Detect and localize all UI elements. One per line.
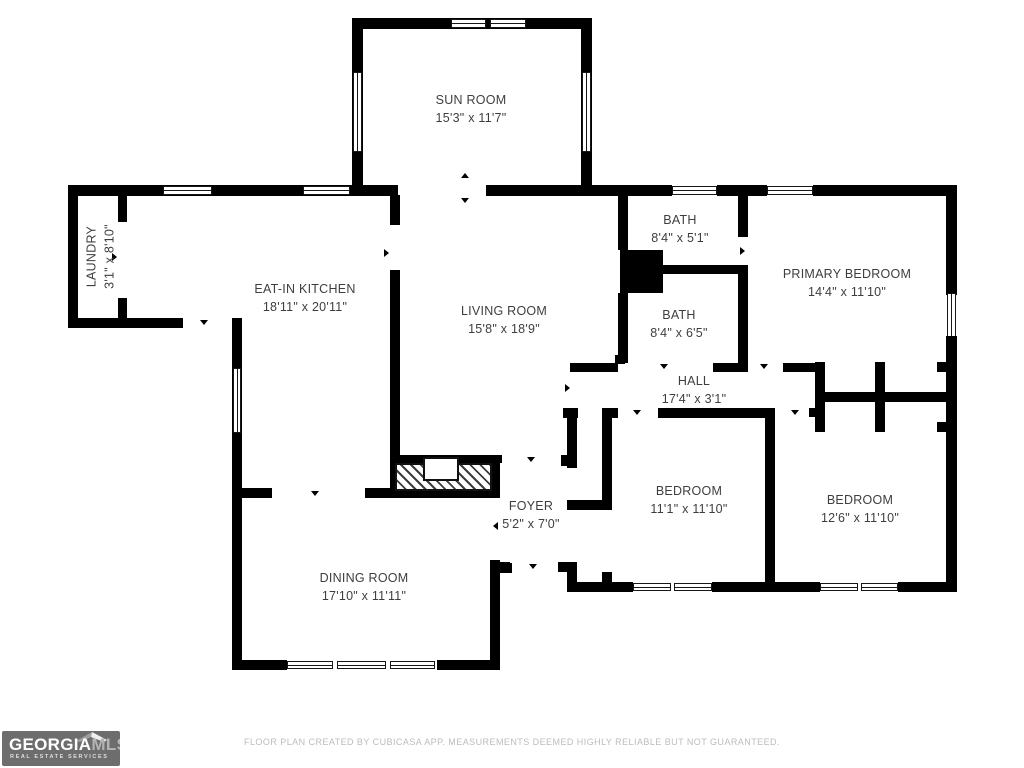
- wall-segment: [232, 660, 287, 670]
- wall-segment: [602, 408, 618, 418]
- wall-segment: [875, 362, 885, 432]
- door-marker: [740, 247, 745, 255]
- door-marker: [660, 364, 668, 369]
- wall-segment: [592, 185, 672, 196]
- window: [390, 661, 435, 669]
- window: [233, 368, 241, 433]
- room-name: SUN ROOM: [436, 92, 507, 110]
- door-marker: [200, 320, 208, 325]
- disclaimer-text: FLOOR PLAN CREATED BY CUBICASA APP. MEAS…: [0, 737, 1024, 747]
- room-label-bath-lower: BATH 8'4" x 6'5": [650, 307, 707, 342]
- door-marker: [760, 364, 768, 369]
- wall-segment: [809, 408, 815, 417]
- stair-landing: [423, 457, 459, 481]
- wall-segment: [783, 363, 817, 372]
- wall-segment: [937, 362, 957, 372]
- room-dims: 8'4" x 5'1": [651, 230, 708, 248]
- wall-segment: [486, 185, 592, 196]
- window: [337, 661, 386, 669]
- wall-segment: [390, 195, 400, 225]
- room-label-dining-room: DINING ROOM 17'10" x 11'11": [320, 570, 409, 605]
- logo-brand-primary: GEORGIA: [9, 735, 91, 754]
- door-marker: [791, 410, 799, 415]
- wall-segment: [559, 562, 567, 571]
- window: [287, 661, 333, 669]
- room-label-hall: HALL 17'4" x 3'1": [662, 373, 727, 408]
- room-name: BATH: [651, 212, 708, 230]
- room-dims: 15'8" x 18'9": [461, 321, 547, 339]
- wall-segment: [898, 582, 957, 592]
- georgia-mls-logo: GEORGIAMLS REAL ESTATE SERVICES: [2, 731, 120, 766]
- wall-segment: [815, 362, 825, 432]
- door-marker: [384, 249, 389, 257]
- wall-segment: [602, 572, 612, 582]
- logo-tagline: REAL ESTATE SERVICES: [10, 754, 109, 760]
- window: [303, 186, 350, 195]
- room-name: LIVING ROOM: [461, 303, 547, 321]
- window: [451, 19, 486, 28]
- wall-segment: [738, 196, 748, 237]
- wall-segment: [567, 562, 577, 592]
- logo-wordmark: GEORGIAMLS: [9, 735, 120, 755]
- door-marker: [633, 410, 641, 415]
- room-name: PRIMARY BEDROOM: [783, 266, 911, 284]
- room-name: EAT-IN KITCHEN: [254, 281, 355, 299]
- door-marker: [527, 457, 535, 462]
- room-dims: 11'1" x 11'10": [650, 501, 727, 519]
- wall-segment: [618, 196, 628, 250]
- room-dims: 8'4" x 6'5": [650, 325, 707, 343]
- door-marker: [311, 491, 319, 496]
- door-marker: [565, 384, 570, 392]
- door-marker: [529, 564, 537, 569]
- room-dims: 17'4" x 3'1": [662, 391, 727, 409]
- wall-segment: [946, 336, 957, 592]
- room-label-bath-upper: BATH 8'4" x 5'1": [651, 212, 708, 247]
- window: [163, 186, 212, 195]
- room-label-laundry: LAUNDRY 3'1" x 8'10": [84, 212, 119, 302]
- wall-segment: [815, 392, 957, 402]
- wall-segment: [563, 408, 578, 418]
- window: [947, 293, 956, 338]
- wall-segment: [658, 408, 767, 418]
- room-dims: 18'11" x 20'11": [254, 299, 355, 317]
- room-label-sun-room: SUN ROOM 15'3" x 11'7": [436, 92, 507, 127]
- wall-segment: [602, 418, 612, 510]
- window: [490, 19, 526, 28]
- room-label-kitchen: EAT-IN KITCHEN 18'11" x 20'11": [254, 281, 355, 316]
- room-dims: 17'10" x 11'11": [320, 588, 409, 606]
- window: [582, 72, 591, 152]
- wall-segment: [946, 185, 957, 295]
- room-name: LAUNDRY: [84, 212, 102, 302]
- floor-plan: SUN ROOM 15'3" x 11'7" LAUNDRY 3'1" x 8'…: [0, 0, 1024, 768]
- logo-brand-secondary: MLS: [91, 735, 120, 754]
- room-label-primary-bedroom: PRIMARY BEDROOM 14'4" x 11'10": [783, 266, 911, 301]
- window: [353, 72, 362, 152]
- wall-segment: [232, 488, 272, 498]
- door-marker: [461, 173, 469, 178]
- chimney: [620, 250, 663, 293]
- wall-segment: [765, 408, 775, 582]
- room-name: FOYER: [502, 498, 559, 516]
- room-name: HALL: [662, 373, 727, 391]
- door-marker: [493, 522, 498, 530]
- room-dims: 15'3" x 11'7": [436, 110, 507, 128]
- window: [861, 583, 898, 591]
- wall-segment: [490, 560, 500, 670]
- room-label-foyer: FOYER 5'2" x 7'0": [502, 498, 559, 533]
- window: [820, 583, 858, 591]
- window: [672, 186, 717, 195]
- window: [674, 583, 712, 591]
- wall-segment: [813, 185, 957, 196]
- wall-segment: [618, 293, 628, 363]
- room-dims: 12'6" x 11'10": [821, 510, 899, 528]
- room-dims: 14'4" x 11'10": [783, 284, 911, 302]
- wall-segment: [118, 298, 127, 328]
- window: [633, 583, 671, 591]
- wall-segment: [570, 363, 618, 372]
- wall-segment: [738, 265, 748, 372]
- window: [767, 186, 813, 195]
- wall-segment: [561, 455, 568, 466]
- room-dims: 3'1" x 8'10": [101, 212, 119, 302]
- room-name: DINING ROOM: [320, 570, 409, 588]
- room-label-bedroom-right: BEDROOM 12'6" x 11'10": [821, 492, 899, 527]
- room-label-living-room: LIVING ROOM 15'8" x 18'9": [461, 303, 547, 338]
- room-name: BEDROOM: [821, 492, 899, 510]
- room-name: BATH: [650, 307, 707, 325]
- wall-segment: [717, 185, 767, 196]
- wall-segment: [663, 265, 740, 274]
- room-name: BEDROOM: [650, 483, 727, 501]
- wall-segment: [118, 196, 127, 222]
- room-dims: 5'2" x 7'0": [502, 516, 559, 534]
- wall-segment: [937, 422, 957, 432]
- room-label-bedroom-left: BEDROOM 11'1" x 11'10": [650, 483, 727, 518]
- door-marker: [461, 198, 469, 203]
- wall-segment: [490, 562, 510, 572]
- wall-segment: [712, 582, 820, 592]
- wall-segment: [68, 185, 78, 328]
